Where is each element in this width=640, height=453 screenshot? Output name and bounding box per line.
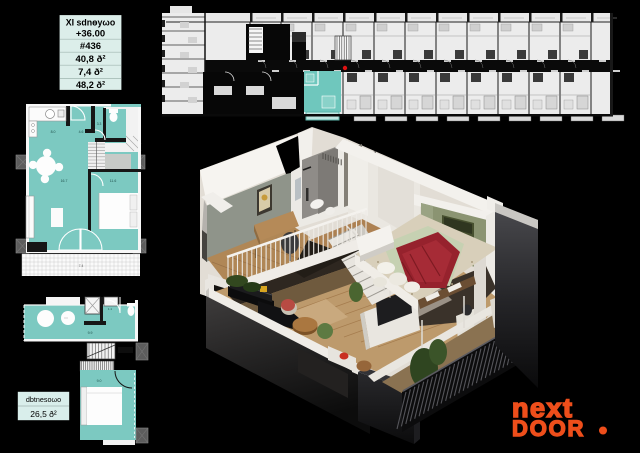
svg-text:16.7: 16.7 [61, 179, 68, 183]
svg-text:7,4 ð²: 7,4 ð² [78, 67, 103, 78]
svg-text:11.6: 11.6 [110, 179, 117, 183]
svg-text:8.0: 8.0 [51, 130, 56, 134]
svg-text:3.3: 3.3 [97, 122, 102, 126]
svg-text:1.1: 1.1 [108, 307, 113, 311]
svg-text:9.0: 9.0 [97, 379, 102, 383]
svg-text:7.4: 7.4 [79, 264, 84, 268]
svg-text:+36.00: +36.00 [76, 29, 105, 40]
svg-text:9.9: 9.9 [88, 331, 93, 335]
svg-text:dbtnesoωo: dbtnesoωo [26, 395, 61, 404]
svg-text:40,8 ð²: 40,8 ð² [75, 54, 105, 65]
svg-text:48,2 ð²: 48,2 ð² [76, 80, 105, 90]
svg-text:26,5 ð²: 26,5 ð² [30, 409, 57, 419]
svg-text:DOOR: DOOR [512, 416, 585, 441]
svg-text:4.6: 4.6 [79, 130, 84, 134]
svg-text:#436: #436 [80, 41, 101, 52]
svg-text:XI sdnөyωo: XI sdnөyωo [66, 18, 116, 28]
